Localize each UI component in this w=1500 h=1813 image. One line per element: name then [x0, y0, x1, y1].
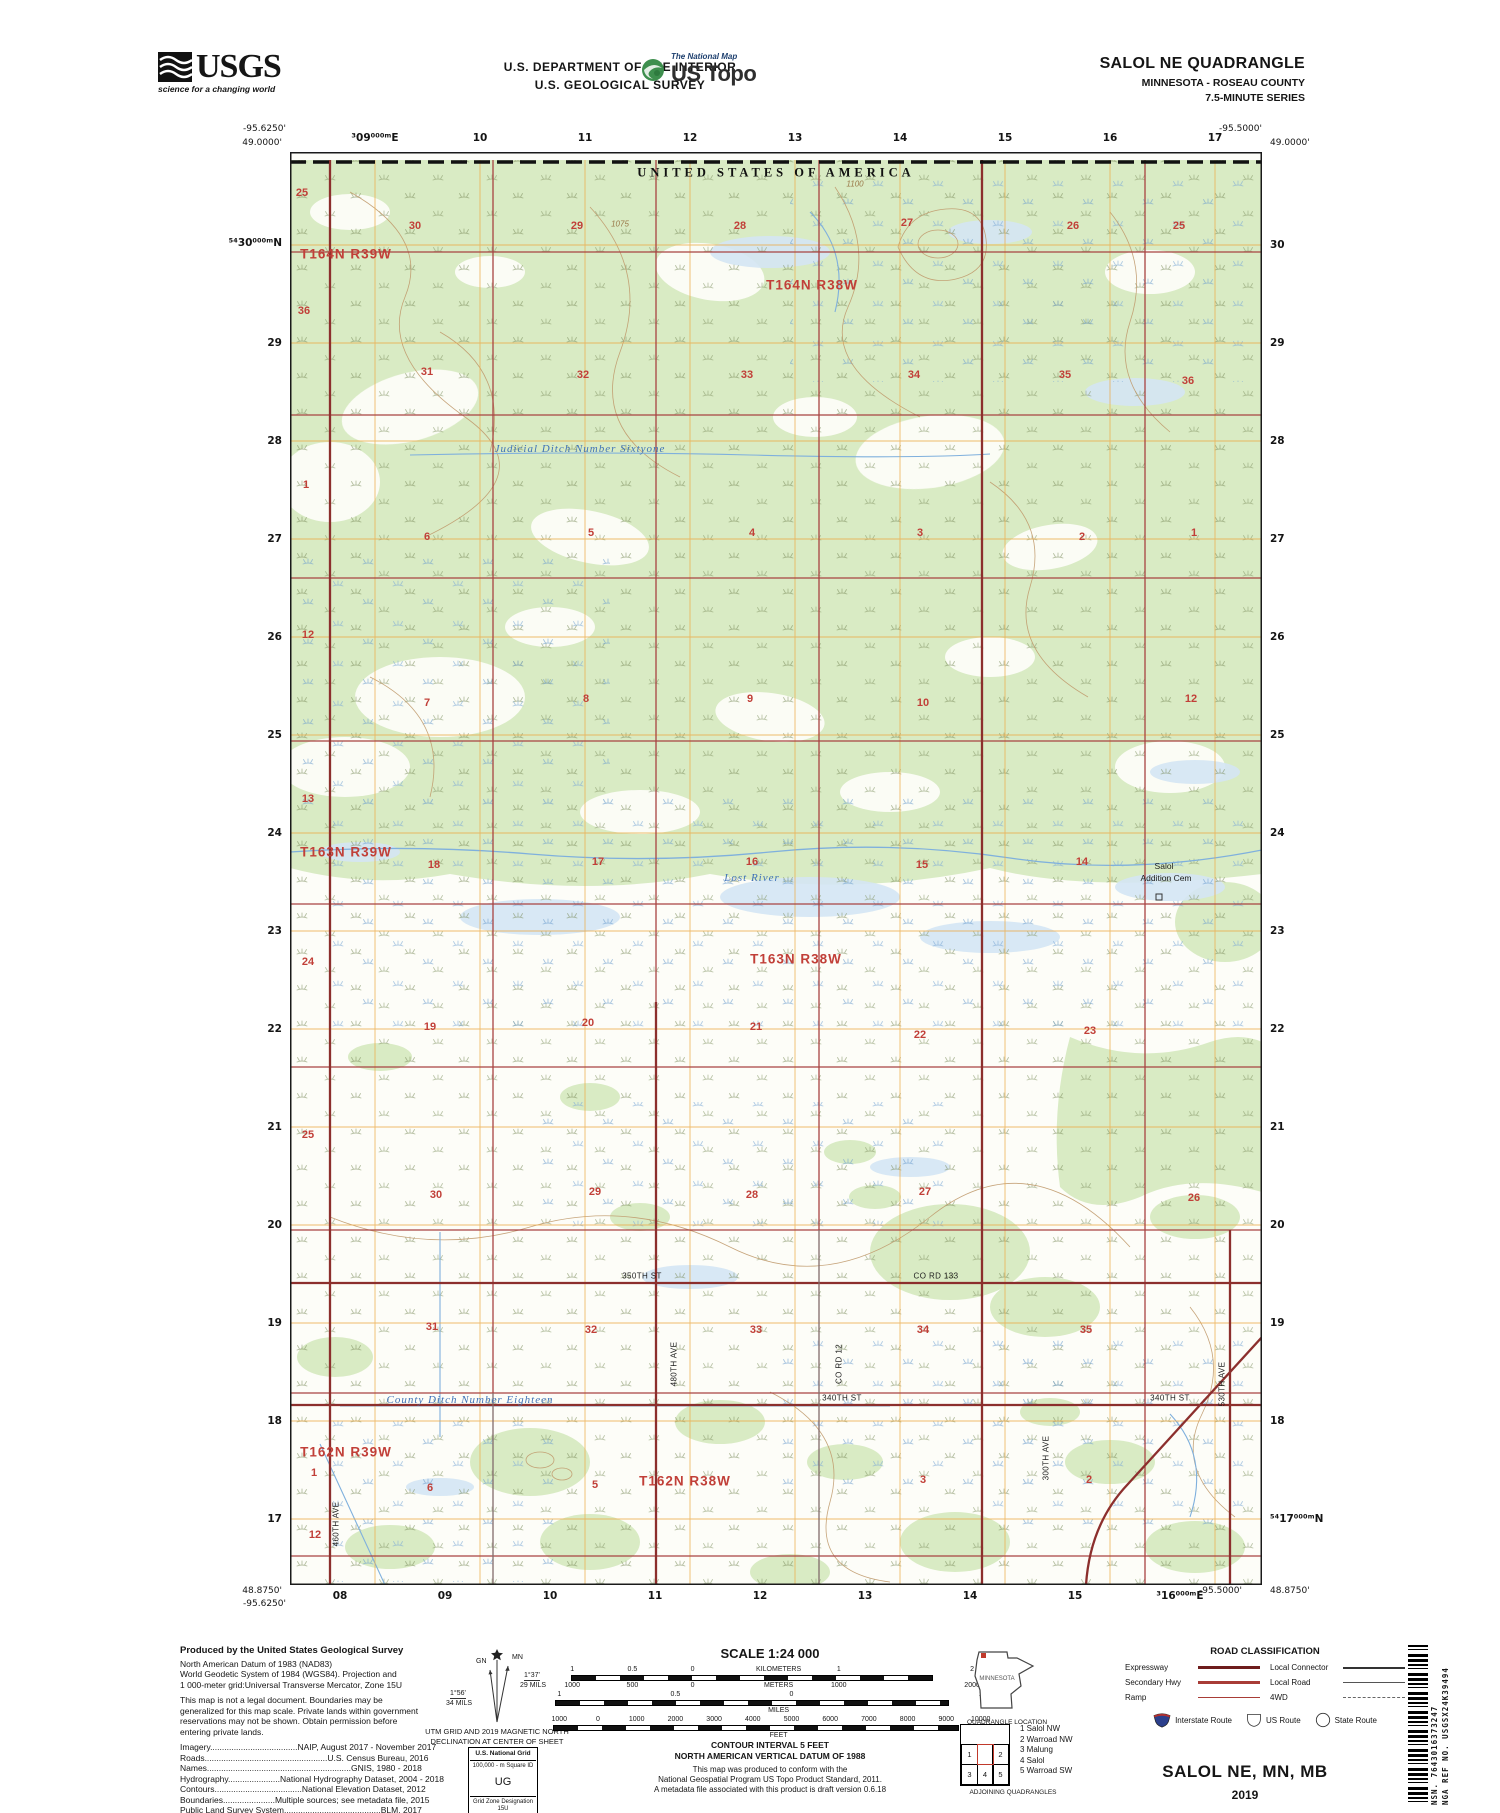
national-map-brand: The National Map	[671, 52, 756, 61]
grid-edge-label: -95.5000'	[1199, 1586, 1242, 1596]
grid-edge-label: 27	[267, 533, 282, 545]
scale-bar	[555, 1700, 949, 1706]
road-classification-legend: ROAD CLASSIFICATION Expressway Secondary…	[1125, 1646, 1405, 1728]
scale-tick-label: 1000	[552, 1716, 568, 1723]
grid-edge-label: 23	[1270, 925, 1285, 937]
quadrangle-title: SALOL NE QUADRANGLE	[900, 55, 1305, 73]
minnesota-outline-icon: MINNESOTA	[967, 1646, 1047, 1712]
us-route-shield-icon	[1246, 1712, 1262, 1728]
declination-diagram: GN MN 1°56' 34 MILS 1°37' 29 MILS	[440, 1648, 555, 1726]
mn-declination-value: 1°37'	[524, 1672, 540, 1681]
usgs-logo-text: USGS	[196, 52, 281, 82]
scale-tick-label: 1000	[564, 1682, 580, 1689]
grid-edge-label: 18	[1270, 1415, 1285, 1427]
grid-edge-label: ⁵⁴17⁰⁰⁰ᵐN	[1270, 1513, 1323, 1525]
magnetic-north-label: MN	[512, 1654, 523, 1661]
usgs-tagline: science for a changing world	[158, 84, 348, 94]
usgs-wave-icon	[158, 52, 192, 82]
scale-tick-label: 1	[557, 1691, 561, 1698]
grid-edge-label: 27	[1270, 533, 1285, 545]
usng-square-id-label: 100,000 - m Square ID	[470, 1763, 536, 1771]
expressway-label: Expressway	[1125, 1663, 1168, 1672]
fourwd-label: 4WD	[1270, 1693, 1288, 1702]
scale-tick-label: 1000	[831, 1682, 847, 1689]
state-name-label: MINNESOTA	[979, 1676, 1014, 1682]
text-line: 1 Salol NW	[1020, 1724, 1073, 1735]
scale-title: SCALE 1:24 000	[555, 1646, 985, 1661]
grid-edge-label: -95.5000'	[1219, 124, 1262, 134]
series-label: 7.5-MINUTE SERIES	[900, 92, 1305, 104]
scale-tick-label: 1000	[629, 1716, 645, 1723]
grid-edge-label: 48.8750'	[242, 1586, 282, 1596]
grid-edge-label: 25	[267, 729, 282, 741]
grid-edge-label: ³09⁰⁰⁰ᵐE	[351, 132, 398, 144]
scale-tick-label: METERS	[764, 1682, 793, 1689]
usng-gzd: 15U	[470, 1806, 536, 1813]
us-topo-logo: The National Map US Topo	[640, 52, 756, 87]
grid-edge-label: 24	[1270, 827, 1285, 839]
current-quad-cell	[977, 1744, 994, 1765]
scale-tick-label: MILES	[768, 1707, 789, 1714]
scale-tick-label: 0	[691, 1682, 695, 1689]
department-lines: U.S. DEPARTMENT OF THE INTERIOR U.S. GEO…	[380, 58, 860, 94]
mn-declination-mils: 29 MILS	[520, 1682, 546, 1689]
scale-tick-label: 9000	[939, 1716, 955, 1723]
grid-edge-label: ⁵⁴30⁰⁰⁰ᵐN	[229, 237, 282, 249]
fourwd-line-sample	[1343, 1697, 1405, 1698]
grid-edge-label: 28	[267, 435, 282, 447]
sheet-year: 2019	[1120, 1788, 1370, 1802]
grid-edge-label: 21	[267, 1121, 282, 1133]
grid-edge-label: 19	[1270, 1317, 1285, 1329]
gn-declination-mils: 34 MILS	[446, 1700, 472, 1707]
ramp-line-sample	[1198, 1697, 1260, 1699]
grid-edge-label: 29	[267, 337, 282, 349]
scale-tick-label: 0	[790, 1691, 794, 1698]
nsn-number: NSN. 7643016373247	[1430, 1645, 1439, 1805]
adjoining-cell: 4	[977, 1764, 994, 1785]
text-line: 5 Warroad SW	[1020, 1766, 1073, 1777]
sheet-name: SALOL NE, MN, MB	[1120, 1762, 1370, 1782]
usng-gzd-label: Grid Zone Designation	[470, 1799, 536, 1807]
usng-box: U.S. National Grid 100,000 - m Square ID…	[468, 1747, 538, 1813]
local-connector-line-sample	[1343, 1667, 1405, 1669]
scale-tick-label: 0.5	[671, 1691, 681, 1698]
gn-declination-value: 1°56'	[450, 1690, 466, 1699]
grid-edge-label: -95.6250'	[243, 1599, 286, 1609]
grid-edge-label: 13	[788, 132, 803, 144]
scale-tick-label: 8000	[900, 1716, 916, 1723]
grid-edge-label: 30	[1270, 239, 1285, 251]
text-line: 3 Malung	[1020, 1745, 1073, 1756]
grid-edge-label: 23	[267, 925, 282, 937]
scale-tick-label: FEET	[770, 1732, 788, 1739]
adjoining-quadrangles-grid: 12345	[960, 1724, 1010, 1786]
local-road-label: Local Road	[1270, 1678, 1310, 1687]
grid-edge-label: 15	[1068, 1590, 1083, 1602]
grid-edge-label: 17	[1208, 132, 1223, 144]
text-line: A metadata file associated with this pro…	[555, 1785, 985, 1795]
expressway-line-sample	[1198, 1666, 1260, 1670]
grid-edge-label: 12	[753, 1590, 768, 1602]
adjoining-cell: 2	[992, 1744, 1009, 1765]
us-topo-globe-icon	[640, 57, 666, 83]
usng-title: U.S. National Grid	[470, 1750, 536, 1761]
barcode-block: NSN. 7643016373247 NGA REF NO. USGSX24K3…	[1408, 1645, 1450, 1805]
grid-edge-label: 24	[267, 827, 282, 839]
grid-edge-label: 19	[267, 1317, 282, 1329]
scale-tick-label: 4000	[745, 1716, 761, 1723]
quadrangle-location: MINNESOTA QUADRANGLE LOCATION	[962, 1646, 1052, 1726]
grid-edge-label: 28	[1270, 435, 1285, 447]
road-classification-title: ROAD CLASSIFICATION	[1125, 1646, 1405, 1657]
vertical-datum-line: NORTH AMERICAN VERTICAL DATUM OF 1988	[555, 1751, 985, 1762]
grid-edge-label: 29	[1270, 337, 1285, 349]
grid-edge-label: 26	[267, 631, 282, 643]
grid-edge-label: 26	[1270, 631, 1285, 643]
grid-edge-label: 10	[473, 132, 488, 144]
barcode-stripes-icon	[1408, 1645, 1428, 1805]
scale-bar	[571, 1675, 933, 1681]
grid-edge-label: 10	[543, 1590, 558, 1602]
scale-tick-label: 7000	[861, 1716, 877, 1723]
map-body: UNITED STATES OF AMERICAT164N R39WT164N …	[290, 152, 1262, 1585]
us-topo-map-sheet: USGS science for a changing world U.S. D…	[0, 0, 1500, 1813]
scale-tick-label: 1	[837, 1666, 841, 1673]
scale-bar	[553, 1725, 959, 1731]
state-route-label: State Route	[1335, 1716, 1377, 1725]
grid-edge-label: 21	[1270, 1121, 1285, 1133]
secondary-hwy-line-sample	[1198, 1681, 1260, 1684]
scale-bars: 10.50KILOMETERS1210005000METERS100020001…	[555, 1666, 985, 1741]
quadrangle-subtitle: MINNESOTA - ROSEAU COUNTY	[900, 77, 1305, 89]
contour-interval-note: CONTOUR INTERVAL 5 FEET NORTH AMERICAN V…	[555, 1740, 985, 1762]
adjoining-cell: 5	[992, 1764, 1009, 1785]
text-line: 4 Salol	[1020, 1756, 1073, 1767]
ramp-label: Ramp	[1125, 1693, 1146, 1702]
scale-tick-label: 5000	[784, 1716, 800, 1723]
dept-line-1: U.S. DEPARTMENT OF THE INTERIOR	[380, 58, 860, 76]
grid-edge-label: 20	[267, 1219, 282, 1231]
grid-edge-label: 49.0000'	[1270, 138, 1310, 148]
contour-interval-line: CONTOUR INTERVAL 5 FEET	[555, 1740, 985, 1751]
grid-edge-label: 20	[1270, 1219, 1285, 1231]
map-artwork	[290, 152, 1262, 1585]
grid-edge-label: 12	[683, 132, 698, 144]
grid-edge-label: 08	[333, 1590, 348, 1602]
text-line: 2 Warroad NW	[1020, 1735, 1073, 1746]
adjoining-cell: 3	[961, 1764, 978, 1785]
grid-edge-label: 48.8750'	[1270, 1586, 1310, 1596]
local-road-line-sample	[1343, 1682, 1405, 1683]
grid-edge-label: 09	[438, 1590, 453, 1602]
adjoining-quadrangles-list: 1 Salol NW2 Warroad NW3 Malung4 Salol5 W…	[1020, 1724, 1073, 1777]
grid-edge-label: ³16⁰⁰⁰ᵐE	[1156, 1590, 1203, 1602]
sheet-title-block: SALOL NE QUADRANGLE MINNESOTA - ROSEAU C…	[900, 55, 1305, 104]
text-line: National Geospatial Program US Topo Prod…	[555, 1775, 985, 1785]
grid-north-label: GN	[476, 1658, 487, 1665]
sheet-name-block: SALOL NE, MN, MB 2019	[1120, 1762, 1370, 1802]
scale-block: SCALE 1:24 000 10.50KILOMETERS1210005000…	[555, 1646, 985, 1741]
local-connector-label: Local Connector	[1270, 1663, 1328, 1672]
interstate-route-label: Interstate Route	[1175, 1716, 1232, 1725]
interstate-shield-icon	[1153, 1712, 1171, 1728]
text-line: This map was produced to conform with th…	[555, 1765, 985, 1775]
scale-tick-label: 2000	[668, 1716, 684, 1723]
grid-edge-label: 14	[893, 132, 908, 144]
nga-ref-number: NGA REF NO. USGSX24K39494	[1441, 1645, 1450, 1805]
scale-tick-label: 500	[627, 1682, 639, 1689]
usgs-logo: USGS science for a changing world	[158, 52, 348, 94]
grid-edge-label: 22	[267, 1023, 282, 1035]
dept-line-2: U.S. GEOLOGICAL SURVEY	[380, 76, 860, 94]
usng-square-id: UG	[470, 1779, 536, 1787]
grid-edge-label: 17	[267, 1513, 282, 1525]
quad-location-marker	[981, 1653, 986, 1658]
scale-tick-label: 0	[691, 1666, 695, 1673]
scale-tick-label: 3000	[706, 1716, 722, 1723]
state-route-circle-icon	[1315, 1712, 1331, 1728]
adjoining-cell: 1	[961, 1744, 978, 1765]
grid-edge-label: 14	[963, 1590, 978, 1602]
scale-tick-label: 6000	[822, 1716, 838, 1723]
grid-edge-label: 16	[1103, 132, 1118, 144]
grid-edge-label: 15	[998, 132, 1013, 144]
standard-conformance-note: This map was produced to conform with th…	[555, 1765, 985, 1795]
grid-edge-label: 25	[1270, 729, 1285, 741]
scale-tick-label: 1	[570, 1666, 574, 1673]
grid-edge-label: 49.0000'	[242, 138, 282, 148]
grid-edge-label: 11	[648, 1590, 663, 1602]
adjoining-quadrangles-caption: ADJOINING QUADRANGLES	[948, 1789, 1078, 1796]
grid-edge-label: 18	[267, 1415, 282, 1427]
grid-edge-label: -95.6250'	[243, 124, 286, 134]
scale-tick-label: 0.5	[628, 1666, 638, 1673]
scale-tick-label: 0	[596, 1716, 600, 1723]
us-topo-brand: US Topo	[671, 61, 756, 87]
us-route-label: US Route	[1266, 1716, 1301, 1725]
grid-edge-label: 22	[1270, 1023, 1285, 1035]
secondary-hwy-label: Secondary Hwy	[1125, 1678, 1181, 1687]
grid-edge-label: 13	[858, 1590, 873, 1602]
scale-tick-label: KILOMETERS	[756, 1666, 801, 1673]
grid-edge-label: 11	[578, 132, 593, 144]
